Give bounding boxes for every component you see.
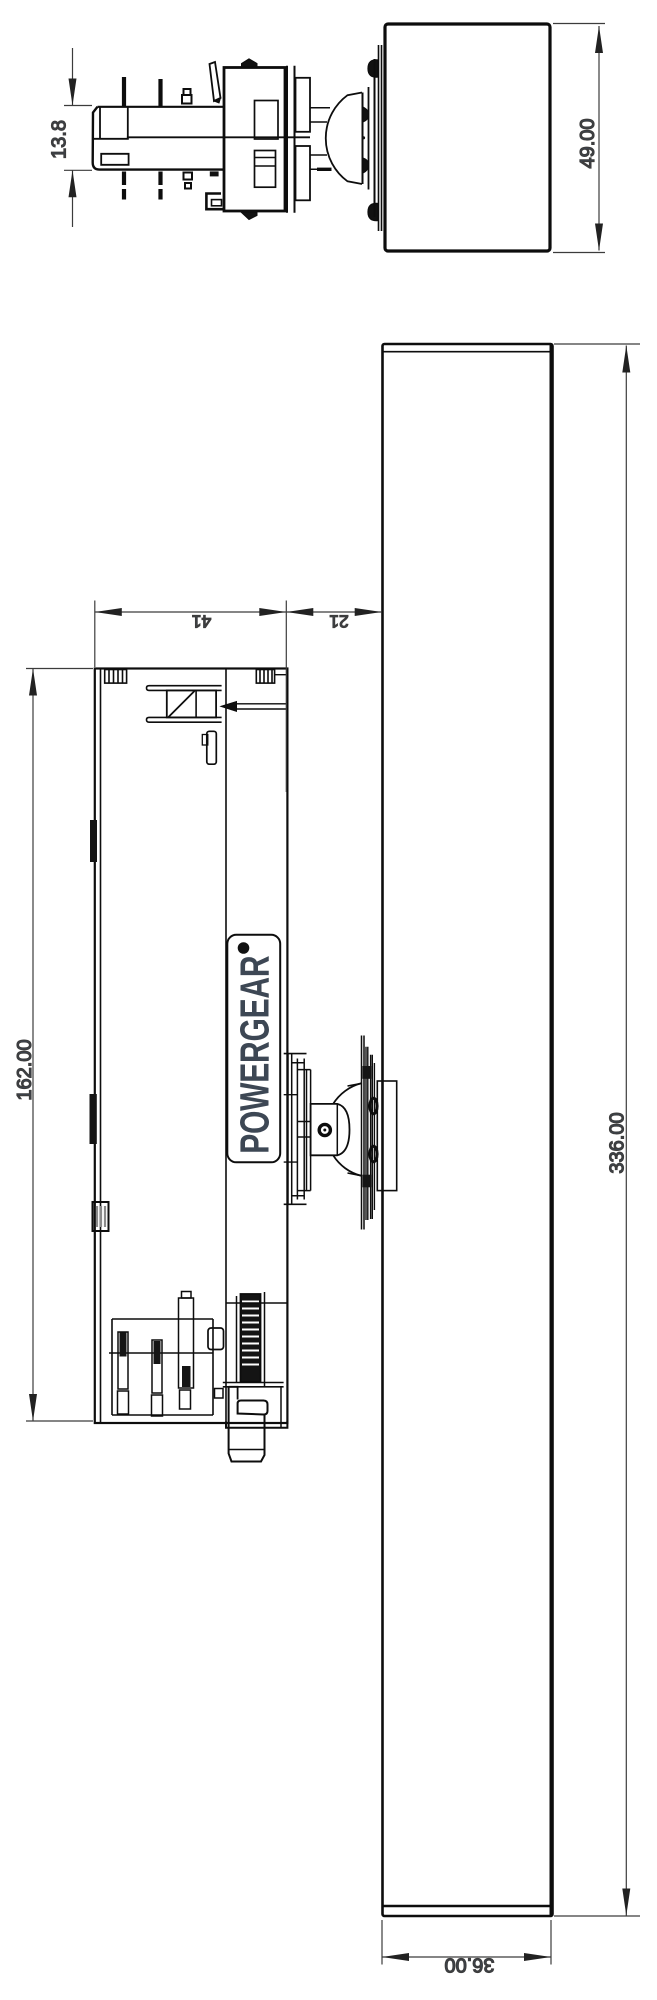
svg-text:41: 41 [192,612,211,632]
svg-text:336.00: 336.00 [607,1112,629,1173]
svg-text:49.00: 49.00 [577,118,599,168]
svg-text:21: 21 [329,612,348,632]
svg-text:162.00: 162.00 [14,1039,36,1100]
svg-text:POWERGEAR: POWERGEAR [232,956,277,1154]
svg-text:13.8: 13.8 [49,120,71,159]
svg-text:36.00: 36.00 [444,1954,494,1976]
